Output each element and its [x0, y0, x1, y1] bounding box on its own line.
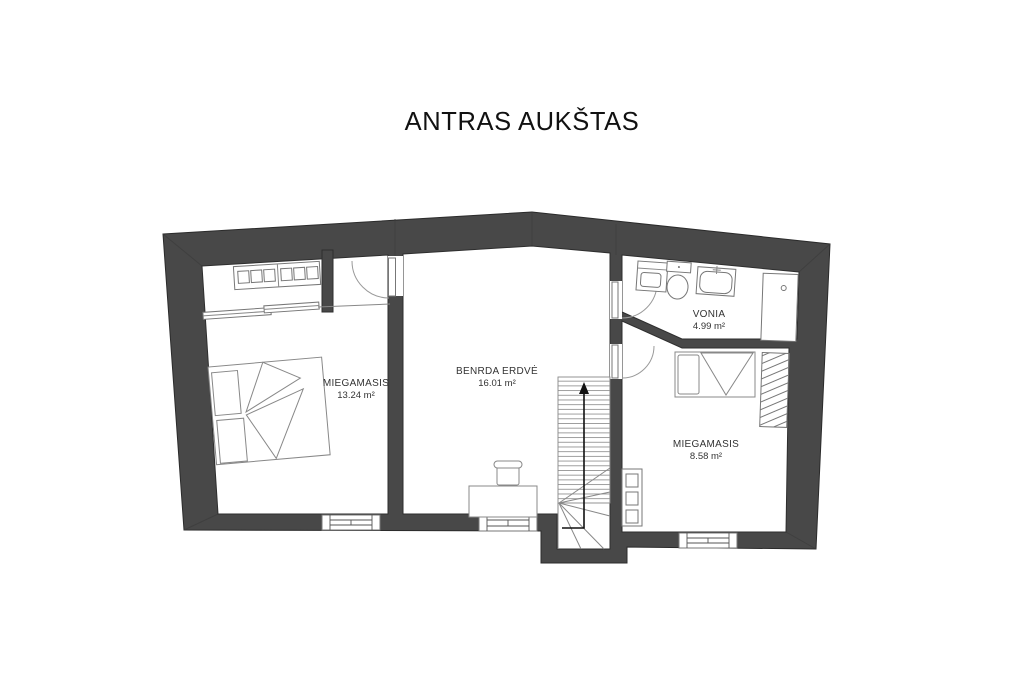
wardrobe: [233, 261, 320, 289]
wardrobe-compartment: [251, 270, 263, 283]
pillow: [217, 418, 248, 463]
washing-machine: [636, 261, 668, 292]
page-title: ANTRAS AUKŠTAS: [405, 107, 640, 136]
window-bedroom-2: [679, 533, 737, 548]
window-bedroom-1: [322, 515, 380, 530]
dresser-drawer: [626, 492, 638, 505]
ladder-radiator: [760, 353, 790, 428]
room-label-common-area: BENRDA ERDVĖ: [456, 364, 538, 377]
room-area-bathroom: 4.99 m²: [693, 321, 725, 332]
dresser-drawer: [626, 510, 638, 523]
wardrobe-compartment: [238, 271, 250, 284]
bed-single: [675, 352, 755, 397]
wardrobe-compartment: [281, 268, 293, 281]
floor-plan-page: ANTRAS AUKŠTAS: [0, 0, 1024, 683]
room-area-bedroom-1: 13.24 m²: [337, 390, 375, 401]
wardrobe-compartment: [264, 269, 276, 282]
room-area-bedroom-2: 8.58 m²: [690, 451, 722, 462]
desk: [469, 486, 537, 517]
bed-double: [208, 357, 330, 465]
floor-plan-drawing: ANTRAS AUKŠTAS: [0, 0, 1024, 683]
room-label-bedroom-1: MIEGAMASIS: [323, 378, 389, 389]
chair: [494, 461, 522, 485]
dresser: [622, 469, 642, 526]
room-label-bedroom-2: MIEGAMASIS: [673, 439, 739, 450]
room-label-bathroom: VONIA: [693, 309, 726, 320]
wardrobe-compartment: [307, 267, 319, 280]
room-area-common-area: 16.01 m²: [478, 378, 516, 389]
dresser-drawer: [626, 474, 638, 487]
sink: [696, 265, 736, 297]
wardrobe-compartment: [294, 267, 306, 280]
pillow: [678, 355, 699, 394]
shower: [761, 273, 798, 341]
pillow: [212, 371, 242, 416]
closet-stub-wall: [322, 250, 333, 312]
